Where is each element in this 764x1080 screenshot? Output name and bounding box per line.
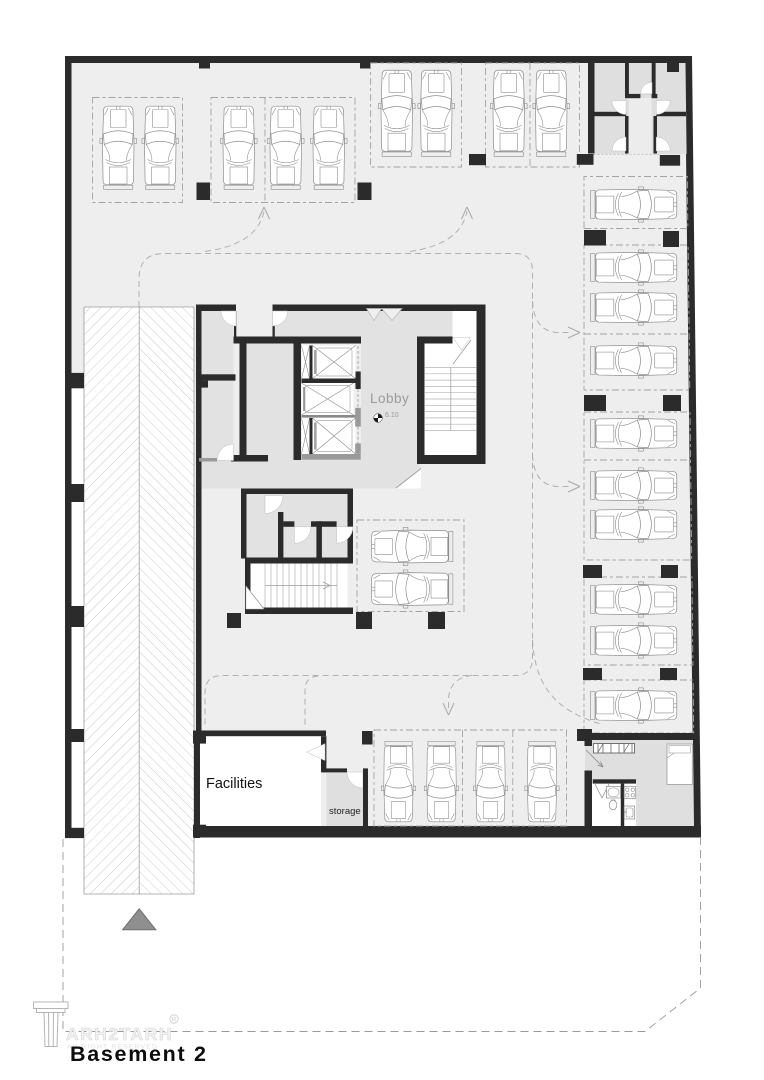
svg-text:6.10: 6.10 — [385, 412, 399, 419]
svg-text:Facilities: Facilities — [206, 776, 262, 792]
svg-text:Basement 2: Basement 2 — [70, 1042, 208, 1066]
svg-text:Lobby: Lobby — [370, 391, 409, 406]
svg-text:R: R — [172, 1017, 177, 1024]
svg-text:storage: storage — [329, 806, 361, 817]
svg-text:ARH2TARH: ARH2TARH — [66, 1024, 173, 1044]
